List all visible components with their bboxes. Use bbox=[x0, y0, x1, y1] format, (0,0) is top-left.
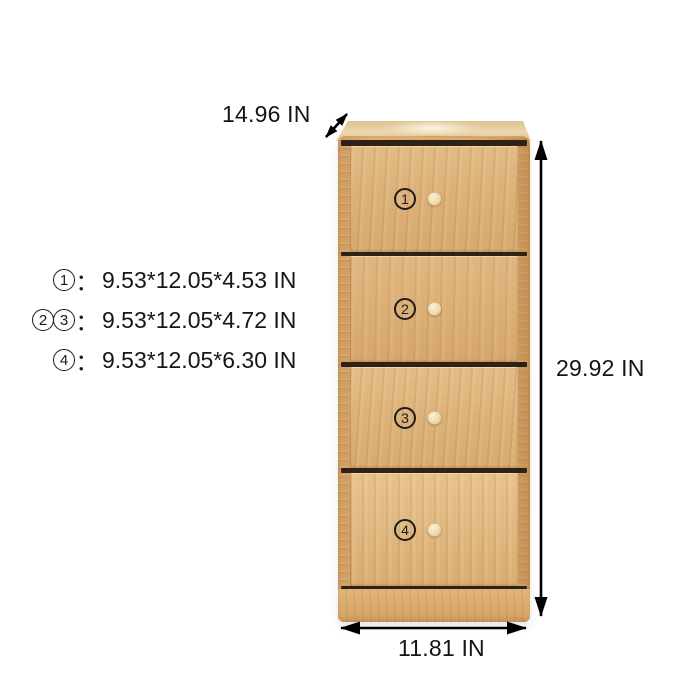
drawer-2-number-badge: 2 bbox=[394, 298, 416, 320]
depth-dimension-label: 14.96 IN bbox=[222, 101, 311, 128]
circled-number-3-icon: 3 bbox=[53, 309, 75, 331]
drawer-1-knob bbox=[428, 193, 441, 206]
drawer-1: 1 bbox=[350, 146, 518, 252]
spec-colon: ： bbox=[75, 303, 99, 337]
spec-value-1: 9.53*12.05*4.53 IN bbox=[102, 267, 296, 294]
drawer-3-number-badge: 3 bbox=[394, 407, 416, 429]
spec-colon: ： bbox=[75, 263, 99, 297]
spec-value-3: 9.53*12.05*6.30 IN bbox=[102, 347, 296, 374]
spec-value-2: 9.53*12.05*4.72 IN bbox=[102, 307, 296, 334]
cabinet-base bbox=[338, 589, 530, 622]
drawer-size-spec-block: 1 ： 9.53*12.05*4.53 IN 2 3 ： 9.53*12.05*… bbox=[28, 260, 296, 380]
height-dimension-label: 29.92 IN bbox=[556, 355, 645, 382]
drawer-2-knob bbox=[428, 303, 441, 316]
spec-line-2: 2 3 ： 9.53*12.05*4.72 IN bbox=[28, 300, 296, 340]
product-dimension-image: 1 ： 9.53*12.05*4.53 IN 2 3 ： 9.53*12.05*… bbox=[0, 0, 700, 700]
cabinet-body: 1 2 3 4 bbox=[338, 136, 530, 622]
circled-number-2-icon: 2 bbox=[32, 309, 54, 331]
drawer-4-number-badge: 4 bbox=[394, 519, 416, 541]
drawer-3: 3 bbox=[350, 367, 518, 468]
spec-line-3: 4 ： 9.53*12.05*6.30 IN bbox=[28, 340, 296, 380]
drawer-2: 2 bbox=[350, 256, 518, 362]
circled-number-1-icon: 1 bbox=[53, 269, 75, 291]
drawer-4: 4 bbox=[350, 473, 518, 586]
circled-number-4-icon: 4 bbox=[53, 349, 75, 371]
drawer-1-number-badge: 1 bbox=[394, 188, 416, 210]
drawer-3-knob bbox=[428, 411, 441, 424]
spec-colon: ： bbox=[75, 343, 99, 377]
spec-line-1: 1 ： 9.53*12.05*4.53 IN bbox=[28, 260, 296, 300]
width-dimension-label: 11.81 IN bbox=[398, 635, 485, 662]
drawer-4-knob bbox=[428, 523, 441, 536]
